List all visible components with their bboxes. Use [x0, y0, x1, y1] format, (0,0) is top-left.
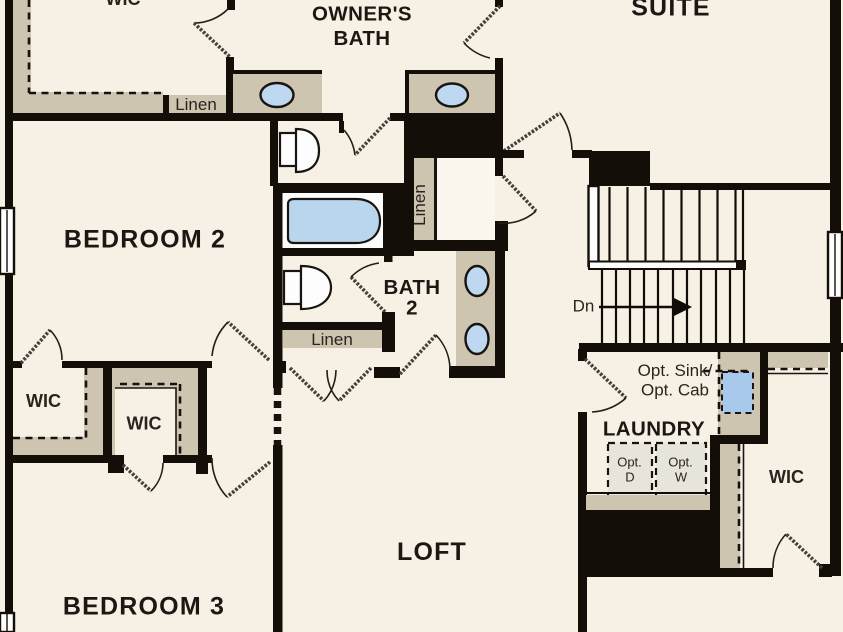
svg-text:LOFT: LOFT	[397, 538, 467, 566]
svg-text:D: D	[625, 470, 634, 485]
svg-text:2: 2	[406, 297, 418, 320]
svg-text:Opt. Sink/: Opt. Sink/	[638, 361, 713, 380]
svg-text:BATH: BATH	[333, 27, 390, 50]
svg-text:LAUNDRY: LAUNDRY	[603, 418, 705, 441]
svg-text:WIC: WIC	[106, 0, 141, 9]
svg-text:SUITE: SUITE	[631, 0, 711, 22]
svg-text:WIC: WIC	[26, 391, 61, 411]
svg-text:Linen: Linen	[311, 330, 353, 349]
svg-text:WIC: WIC	[769, 467, 804, 487]
svg-text:Opt. Cab: Opt. Cab	[641, 381, 709, 400]
svg-text:Linen: Linen	[410, 184, 429, 226]
svg-text:BEDROOM 2: BEDROOM 2	[64, 226, 226, 254]
svg-text:Dn: Dn	[573, 297, 595, 316]
svg-text:BEDROOM 3: BEDROOM 3	[63, 593, 225, 621]
svg-text:Opt.: Opt.	[617, 455, 642, 470]
svg-text:WIC: WIC	[127, 414, 162, 434]
svg-text:W: W	[675, 470, 688, 485]
svg-text:Opt.: Opt.	[668, 455, 693, 470]
svg-text:OWNER'S: OWNER'S	[312, 3, 412, 26]
svg-text:Linen: Linen	[175, 95, 217, 114]
